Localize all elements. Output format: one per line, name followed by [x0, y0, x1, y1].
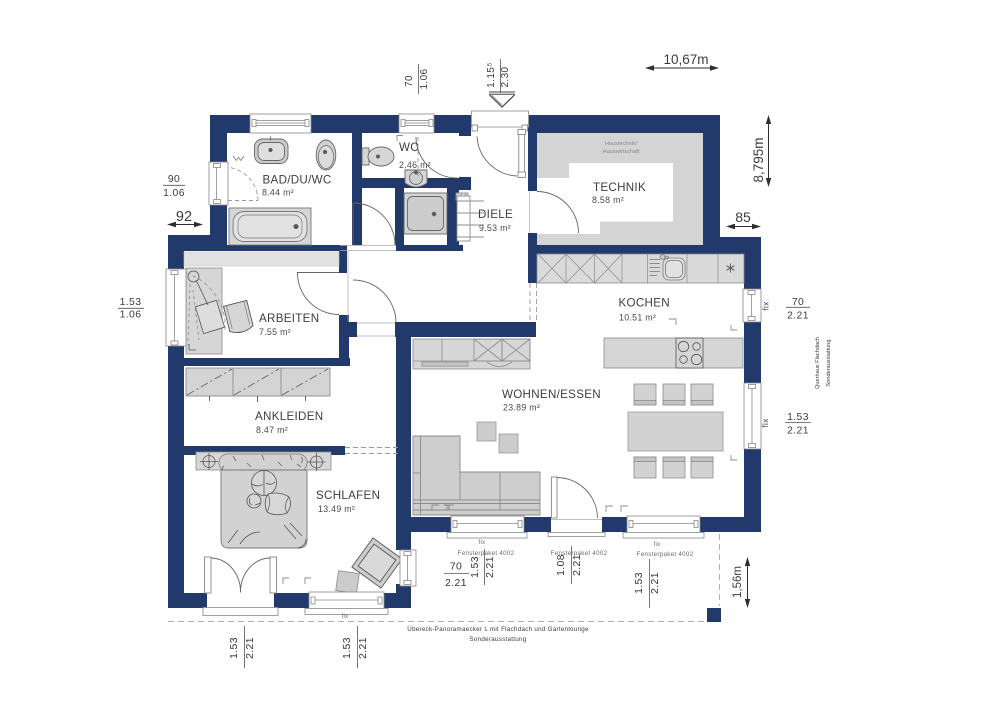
svg-text:2.21: 2.21: [650, 572, 661, 594]
svg-text:9.53 m²: 9.53 m²: [479, 223, 511, 233]
svg-text:23.89 m²: 23.89 m²: [503, 403, 540, 413]
svg-text:1,56m: 1,56m: [732, 566, 744, 598]
svg-text:fix: fix: [761, 418, 770, 427]
svg-text:1.53: 1.53: [634, 572, 645, 594]
svg-text:2.46 m²: 2.46 m²: [399, 160, 431, 170]
svg-text:WOHNEN/ESSEN: WOHNEN/ESSEN: [502, 388, 601, 401]
svg-text:WC: WC: [399, 141, 419, 154]
svg-text:SCHLAFEN: SCHLAFEN: [316, 489, 380, 502]
svg-text:Fensterpaket 4002: Fensterpaket 4002: [637, 551, 694, 558]
svg-text:BAD/DU/WC: BAD/DU/WC: [263, 174, 332, 187]
svg-text:1.53: 1.53: [342, 637, 353, 659]
svg-text:ANKLEIDEN: ANKLEIDEN: [255, 410, 323, 423]
svg-text:1.06: 1.06: [419, 68, 430, 89]
svg-text:70: 70: [404, 75, 415, 87]
svg-text:1.06: 1.06: [163, 188, 185, 199]
svg-text:10.51 m²: 10.51 m²: [619, 313, 656, 323]
svg-text:Haustechnik/: Haustechnik/: [605, 141, 638, 147]
svg-text:2.21: 2.21: [787, 426, 809, 437]
svg-text:Fensterpaket 4002: Fensterpaket 4002: [458, 550, 515, 557]
svg-text:70: 70: [792, 297, 804, 308]
svg-text:85: 85: [735, 209, 751, 225]
svg-text:fix: fix: [653, 541, 661, 548]
svg-text:fix: fix: [478, 539, 486, 546]
svg-text:2.21: 2.21: [787, 311, 809, 322]
svg-text:Sonderausstattung: Sonderausstattung: [826, 340, 832, 387]
svg-text:1.08: 1.08: [556, 554, 567, 576]
svg-text:2.21: 2.21: [572, 554, 583, 576]
svg-text:KOCHEN: KOCHEN: [619, 297, 670, 310]
svg-text:2.21: 2.21: [245, 637, 256, 659]
svg-text:8.47 m²: 8.47 m²: [256, 425, 288, 435]
svg-text:8.44 m²: 8.44 m²: [262, 188, 294, 198]
svg-text:13.49 m²: 13.49 m²: [318, 504, 355, 514]
svg-text:TECHNIK: TECHNIK: [593, 181, 646, 194]
svg-text:70: 70: [450, 562, 462, 573]
svg-text:1.53: 1.53: [787, 412, 809, 423]
svg-text:Übereck-Panoramaecker L mit Fl: Übereck-Panoramaecker L mit Flachdach un…: [407, 626, 589, 633]
svg-text:fix: fix: [762, 301, 771, 310]
svg-text:7.55 m²: 7.55 m²: [259, 327, 291, 337]
svg-text:1.06: 1.06: [120, 310, 142, 321]
svg-text:1.53: 1.53: [470, 556, 481, 578]
svg-text:8,795m: 8,795m: [751, 137, 766, 182]
svg-text:2.21: 2.21: [485, 556, 496, 578]
svg-text:2.21: 2.21: [445, 578, 467, 589]
svg-text:92: 92: [176, 209, 192, 225]
svg-text:2.21: 2.21: [358, 637, 369, 659]
svg-text:1.53: 1.53: [229, 637, 240, 659]
svg-text:DIELE: DIELE: [478, 208, 513, 221]
svg-text:ARBEITEN: ARBEITEN: [259, 312, 319, 325]
svg-text:8.58 m²: 8.58 m²: [592, 195, 624, 205]
svg-text:fix: fix: [341, 613, 349, 620]
svg-text:Sonderausstattung: Sonderausstattung: [469, 636, 526, 643]
svg-text:2.30: 2.30: [500, 66, 511, 87]
svg-text:10,67m: 10,67m: [663, 52, 708, 67]
svg-text:90: 90: [168, 174, 180, 185]
svg-text:1.53: 1.53: [120, 297, 142, 308]
svg-text:Hauswirtschaft: Hauswirtschaft: [603, 149, 640, 155]
svg-text:Querhaus Flachdach: Querhaus Flachdach: [815, 337, 821, 389]
svg-text:1.15⁵: 1.15⁵: [486, 62, 497, 88]
